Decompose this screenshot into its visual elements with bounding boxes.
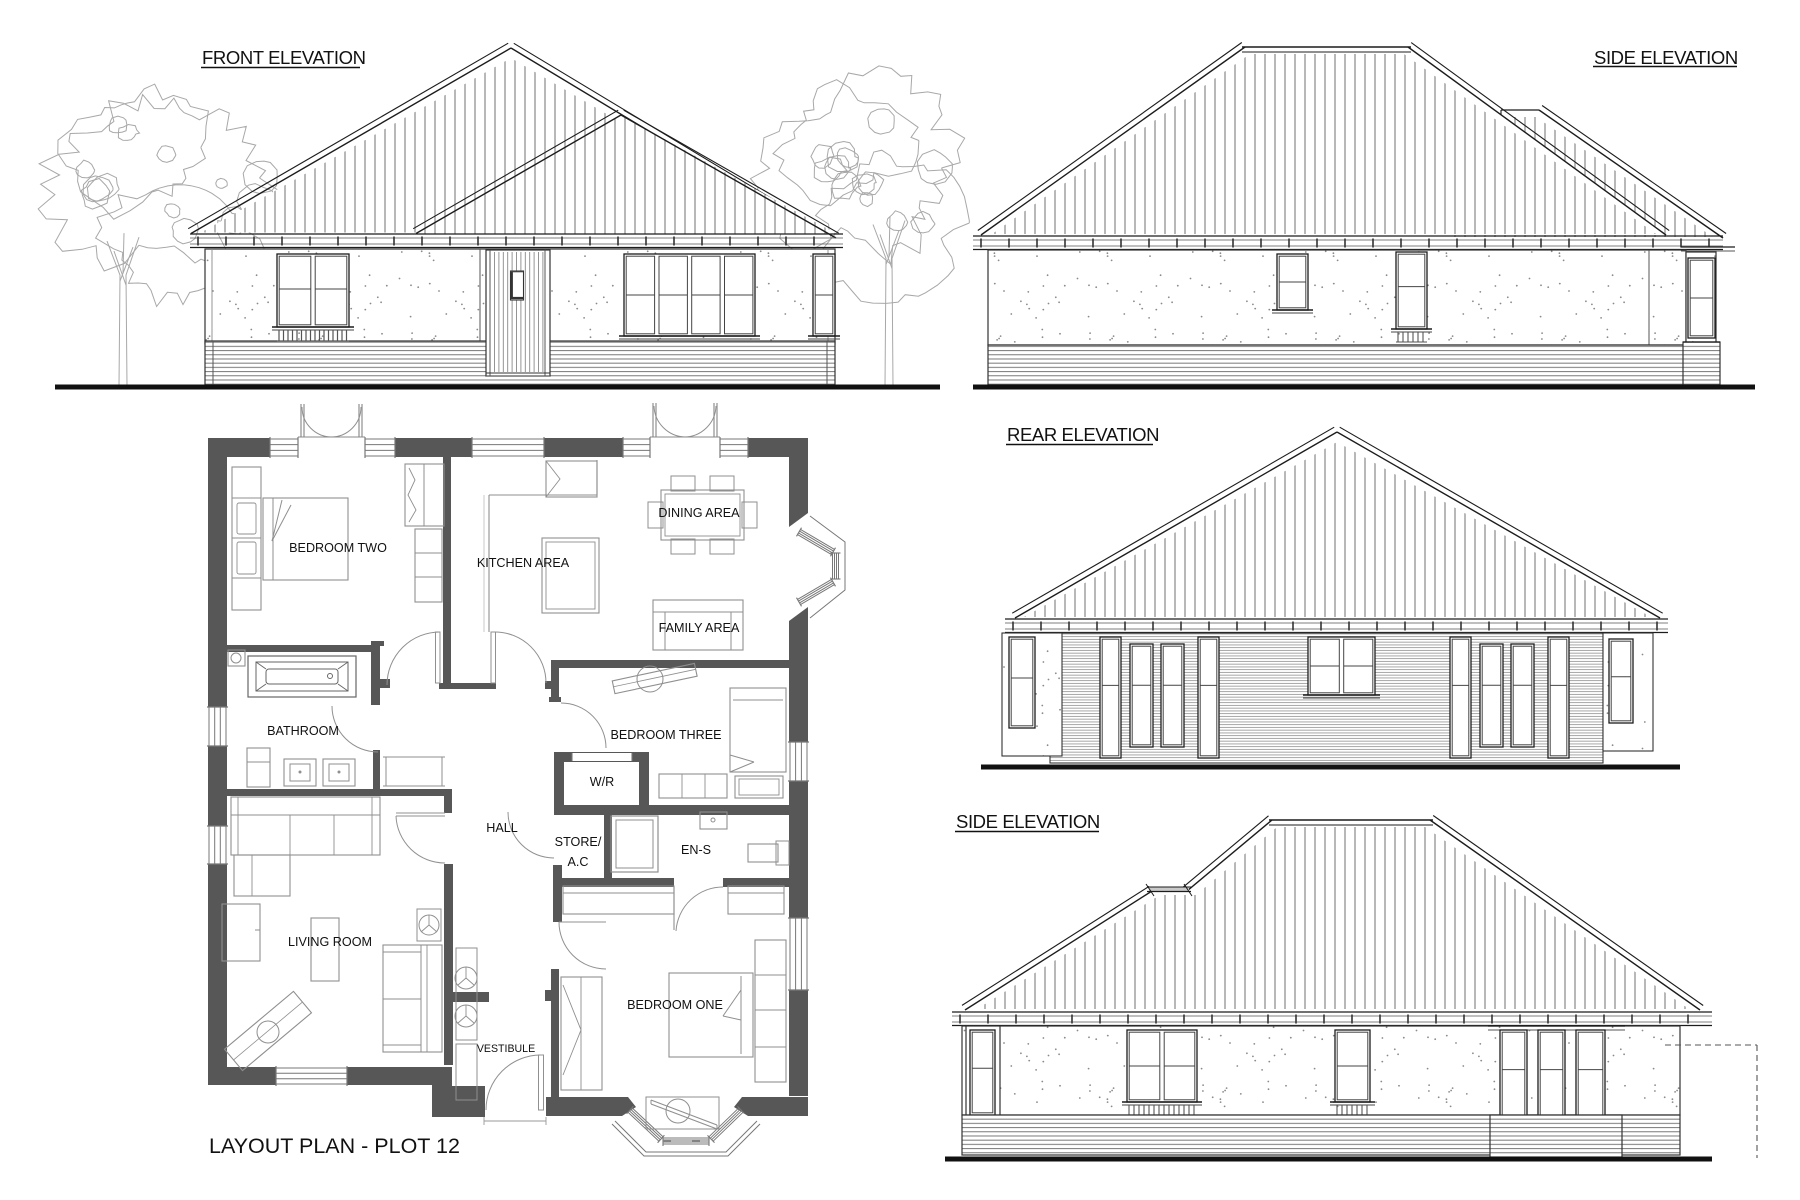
svg-text:REAR ELEVATION: REAR ELEVATION — [1007, 424, 1159, 445]
svg-text:EN-S: EN-S — [681, 843, 711, 857]
svg-text:A.C: A.C — [568, 855, 589, 869]
svg-text:LAYOUT PLAN - PLOT 12: LAYOUT PLAN - PLOT 12 — [209, 1134, 460, 1158]
svg-text:BEDROOM ONE: BEDROOM ONE — [627, 998, 723, 1012]
svg-text:SIDE ELEVATION: SIDE ELEVATION — [1594, 47, 1738, 68]
svg-text:BEDROOM TWO: BEDROOM TWO — [289, 541, 387, 555]
svg-text:STORE/: STORE/ — [555, 835, 602, 849]
svg-text:KITCHEN AREA: KITCHEN AREA — [477, 556, 570, 570]
svg-text:DINING AREA: DINING AREA — [658, 506, 740, 520]
svg-text:SIDE ELEVATION: SIDE ELEVATION — [956, 811, 1100, 832]
svg-text:FAMILY AREA: FAMILY AREA — [659, 621, 740, 635]
svg-text:BEDROOM THREE: BEDROOM THREE — [610, 728, 721, 742]
svg-text:HALL: HALL — [486, 821, 518, 835]
svg-text:VESTIBULE: VESTIBULE — [477, 1043, 535, 1055]
svg-text:BATHROOM: BATHROOM — [267, 724, 339, 738]
svg-text:W/R: W/R — [590, 775, 614, 789]
svg-text:LIVING ROOM: LIVING ROOM — [288, 935, 372, 949]
svg-text:FRONT ELEVATION: FRONT ELEVATION — [202, 47, 366, 68]
